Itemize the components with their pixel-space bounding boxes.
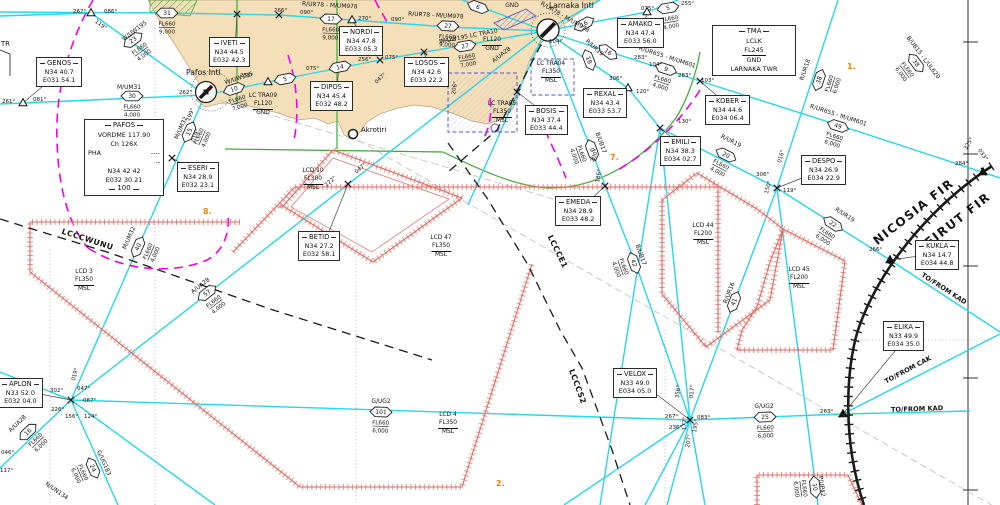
navaid-freq: VORDME 117.90	[88, 131, 160, 140]
area-label-lcd-44: LCD 44FL200MSL	[692, 223, 713, 248]
waypoint-lon: E033 22.2	[408, 76, 445, 84]
waypoint-lat: N34 40.7	[40, 68, 78, 76]
waypoint-box-nordi: NORDIN34 47.8E033 05.3	[339, 26, 383, 56]
waypoint-box-iveti: IVETIN34 44.5E032 42.3	[209, 37, 250, 67]
area-id: LCD 3	[74, 269, 94, 277]
area-lower-limit: MSL	[438, 429, 458, 437]
area-id: LCD 44	[692, 223, 713, 231]
area-id: LC TRA09	[249, 93, 277, 101]
area-id: LC TRA05	[488, 101, 516, 109]
waypoint-name: BOSIS	[529, 107, 564, 116]
waypoint-lon: E032 23.1	[181, 181, 215, 189]
waypoint-box-kober: KOBERN34 44.6E034 06.4	[705, 95, 750, 125]
navaid-note: 100	[117, 184, 130, 194]
waypoint-lat: N34 42.6	[408, 68, 445, 76]
navaid-box-pafos: PAFOS VORDME 117.90 Ch 126X PHA---- -- N…	[84, 119, 164, 196]
tma-lower-limit: GND	[716, 56, 792, 65]
waypoint-lon: E034 22.9	[805, 174, 842, 182]
area-lower-limit: GND	[249, 110, 277, 118]
area-id: LCD 45	[788, 267, 809, 275]
waypoint-box-rexal: REXALN34 43.4E033 53.7	[583, 88, 627, 118]
waypoint-lon: E032 42.3	[213, 56, 246, 64]
waypoint-box-eseri: ESERIN34 28.9E032 23.1	[177, 162, 219, 192]
area-label-fl: FL120GND	[482, 37, 502, 54]
chart-note-number: 1.	[847, 62, 856, 71]
waypoint-box-emeda: EMEDAN34 28.9E033 48.2	[555, 196, 601, 226]
area-label-lc-tra04: LC TRA04FL350MSL	[537, 61, 565, 86]
waypoint-box-elika: ELIKAN33 49.9E034 35.0	[883, 321, 924, 351]
waypoint-name: EMEDA	[559, 198, 597, 207]
area-lower-limit: MSL	[430, 252, 451, 260]
waypoint-name: KOBER	[709, 97, 746, 106]
chart-note-number: 7.	[610, 153, 619, 162]
chart-note-number: 2.	[496, 479, 505, 488]
airport-label-larnaka: Larnaka Intl	[549, 1, 594, 10]
waypoint-box-betid: BETIDN34 27.2E032 58.1	[298, 231, 340, 261]
waypoint-box-dipos: DIPOSN34 45.4E032 48.2	[310, 81, 353, 111]
waypoint-name: LOSOS	[408, 59, 445, 68]
waypoint-name: REXAL	[587, 90, 623, 99]
waypoint-lat: N34 28.9	[181, 173, 215, 181]
waypoint-name: IVETI	[213, 39, 246, 48]
navaid-morse2: --	[88, 158, 160, 167]
waypoint-lat: N34 27.2	[302, 242, 336, 250]
waypoint-name: APLON	[2, 380, 39, 389]
waypoint-lon: E033 53.7	[587, 107, 623, 115]
waypoint-lon: E034 05.0	[617, 387, 653, 395]
waypoint-name: DIPOS	[314, 83, 349, 92]
waypoint-lon: E031 54.1	[40, 76, 78, 84]
waypoint-box-aplon: APLONN33 52.0E032 04.0	[0, 378, 43, 408]
waypoint-lat: N34 37.4	[529, 116, 564, 124]
waypoint-lat: N33 49.0	[617, 379, 653, 387]
waypoint-name: DESPO	[805, 157, 842, 166]
area-label-lcd-10: LCD 10FL300MSL	[302, 168, 323, 193]
area-label-lcd-4: LCD 4FL350MSL	[438, 412, 458, 437]
area-label-lc-tra05: LC TRA05FL350MSL	[488, 101, 516, 126]
waypoint-lon: E034 02.7	[664, 155, 697, 163]
town-label-akrotiri: Akrotiri	[361, 126, 386, 134]
waypoint-lon: E033 56.0	[621, 37, 660, 45]
area-upper-limit: FL350	[431, 243, 451, 252]
navaid-lat: N34 42 42	[88, 167, 160, 176]
area-lower-limit: MSL	[488, 118, 516, 126]
area-upper-limit: FL200	[693, 231, 713, 240]
area-label-lc-tra09: LC TRA09FL120GND	[249, 93, 277, 118]
waypoint-lon: E033 44.4	[529, 124, 564, 132]
waypoint-lon: E032 48.2	[314, 100, 349, 108]
area-upper-limit: FL120	[482, 37, 502, 46]
waypoint-box-velox: VELOXN33 49.0E034 05.0	[613, 368, 657, 398]
waypoint-lat: N34 14.7	[919, 251, 955, 259]
tma-ident: LCLK	[716, 37, 792, 46]
navaid-channel: Ch 126X	[88, 140, 160, 149]
waypoint-lat: N33 52.0	[2, 389, 39, 397]
waypoint-box-emili: EMILIN34 38.3E034 02.7	[660, 136, 701, 166]
area-upper-limit: FL350	[438, 420, 458, 429]
waypoint-name: VELOX	[617, 370, 653, 379]
waypoint-name: NORDI	[343, 28, 379, 37]
area-id: LCD 4	[438, 412, 458, 420]
waypoint-lon: E033 05.3	[343, 45, 379, 53]
tma-unit: LARNAKA TWR	[716, 65, 792, 74]
waypoint-lat: N34 47.8	[343, 37, 379, 45]
area-lower-limit: MSL	[74, 286, 94, 294]
waypoint-name: BETID	[302, 233, 336, 242]
navaid-name: PAFOS	[113, 121, 135, 131]
area-upper-limit: FL200	[789, 275, 809, 284]
waypoint-lon: E033 48.2	[559, 215, 597, 223]
area-upper-limit: FL300	[303, 176, 323, 185]
waypoint-lon: E032 58.1	[302, 250, 336, 258]
tma-upper-limit: FL245	[742, 46, 765, 56]
chart-labels-layer: Larnaka Intl Pafos Intl Akrotiri TR PAFO…	[0, 0, 1000, 505]
waypoint-box-kukla: KUKLAN34 14.7E034 44.8	[915, 240, 959, 270]
waypoint-lat: N34 38.3	[664, 147, 697, 155]
area-id: LCD 10	[302, 168, 323, 176]
waypoint-name: ESERI	[181, 164, 215, 173]
waypoint-lat: N34 43.4	[587, 99, 623, 107]
waypoint-lat: N34 47.4	[621, 29, 660, 37]
waypoint-box-genos: GENOSN34 40.7E031 54.1	[36, 57, 82, 87]
area-lower-limit: MSL	[692, 240, 713, 248]
waypoint-name: GENOS	[40, 59, 78, 68]
waypoint-box-bosis: BOSISN34 37.4E033 44.4	[525, 105, 568, 135]
waypoint-name: EMILI	[664, 138, 697, 147]
waypoint-name: KUKLA	[919, 242, 955, 251]
chart-note-number: 8.	[203, 207, 212, 216]
area-upper-limit: FL350	[74, 277, 94, 286]
area-lower-limit: MSL	[302, 185, 323, 193]
waypoint-lat: N34 45.4	[314, 92, 349, 100]
waypoint-lon: E034 35.0	[887, 340, 920, 348]
aeronautical-chart: 31FL6609,00017FL6609,00027FL6609,00027FL…	[0, 0, 1000, 505]
edge-partial-label: TR	[1, 40, 10, 48]
waypoint-lat: N34 44.5	[213, 48, 246, 56]
area-lower-limit: GND	[482, 46, 502, 54]
area-id: LCD 47	[430, 235, 451, 243]
area-id: LC TRA04	[537, 61, 565, 69]
area-label-lcd-3: LCD 3FL350MSL	[74, 269, 94, 294]
waypoint-lat: N34 28.9	[559, 207, 597, 215]
waypoint-lat: N34 26.9	[805, 166, 842, 174]
waypoint-name: AMAKO	[621, 20, 660, 29]
area-upper-limit: FL350	[492, 109, 512, 118]
waypoint-lon: E032 04.0	[2, 397, 39, 405]
tma-info-box: TMA LCLK FL245 GND LARNAKA TWR	[712, 25, 796, 76]
waypoint-lon: E034 06.4	[709, 114, 746, 122]
area-upper-limit: FL350	[541, 69, 561, 78]
waypoint-lat: N34 44.6	[709, 106, 746, 114]
area-label-lcd-47: LCD 47FL350MSL	[430, 235, 451, 260]
waypoint-box-amako: AMAKON34 47.4E033 56.0	[617, 18, 664, 48]
navaid-morse: ----	[151, 149, 160, 158]
navaid-lon: E032 30 21	[88, 176, 160, 185]
area-label-lcd-45: LCD 45FL200MSL	[788, 267, 809, 292]
waypoint-box-losos: LOSOSN34 42.6E033 22.2	[404, 57, 449, 87]
navaid-ident: PHA	[88, 149, 101, 158]
area-lower-limit: MSL	[537, 78, 565, 86]
waypoint-lon: E034 44.8	[919, 259, 955, 267]
tma-title: TMA	[747, 27, 762, 37]
area-upper-limit: FL120	[253, 101, 273, 110]
waypoint-lat: N33 49.9	[887, 332, 920, 340]
waypoint-name: ELIKA	[887, 323, 920, 332]
area-lower-limit: MSL	[788, 284, 809, 292]
waypoint-box-despo: DESPON34 26.9E034 22.9	[801, 155, 846, 185]
airport-label-pafos: Pafos Intl	[186, 68, 221, 77]
